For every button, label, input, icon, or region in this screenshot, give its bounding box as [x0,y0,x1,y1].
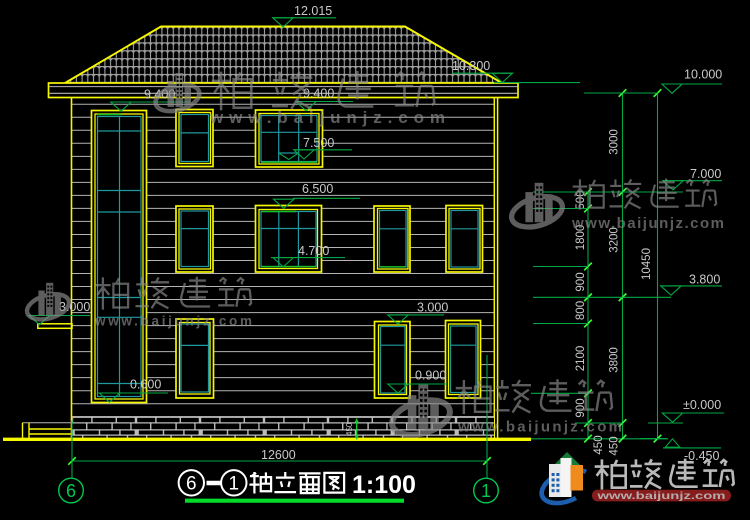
svg-text:3.800: 3.800 [689,273,720,287]
svg-text:12600: 12600 [261,448,296,462]
svg-text:www.baijunjz.com: www.baijunjz.com [596,490,725,502]
svg-text:1: 1 [481,481,491,501]
svg-text:7.500: 7.500 [303,136,334,150]
svg-text:3.000: 3.000 [417,301,448,315]
svg-text:6: 6 [66,481,76,501]
svg-text:2100: 2100 [575,346,587,372]
svg-text:10.000: 10.000 [684,68,722,82]
svg-text:±0.000: ±0.000 [683,398,721,412]
svg-text:450: 450 [345,422,354,436]
svg-text:10.300: 10.300 [452,59,490,73]
svg-text:900: 900 [575,272,587,291]
svg-text:4.700: 4.700 [298,244,329,258]
svg-text:3800: 3800 [609,347,621,373]
svg-text:1:100: 1:100 [352,471,416,499]
svg-text:800: 800 [575,301,587,320]
svg-text:450: 450 [609,436,621,455]
svg-text:10450: 10450 [641,248,653,280]
svg-text:12.015: 12.015 [294,4,332,18]
svg-text:0.600: 0.600 [130,378,161,392]
svg-text:450: 450 [593,435,605,454]
svg-text:6.500: 6.500 [302,182,333,196]
svg-text:3000: 3000 [609,129,621,155]
svg-text:6: 6 [186,474,197,495]
svg-text:0.900: 0.900 [415,369,446,383]
svg-text:-0.450: -0.450 [684,449,719,463]
svg-text:www.baijunjz.com: www.baijunjz.com [571,215,724,232]
svg-text:1: 1 [229,474,240,495]
svg-text:7.000: 7.000 [690,167,721,181]
